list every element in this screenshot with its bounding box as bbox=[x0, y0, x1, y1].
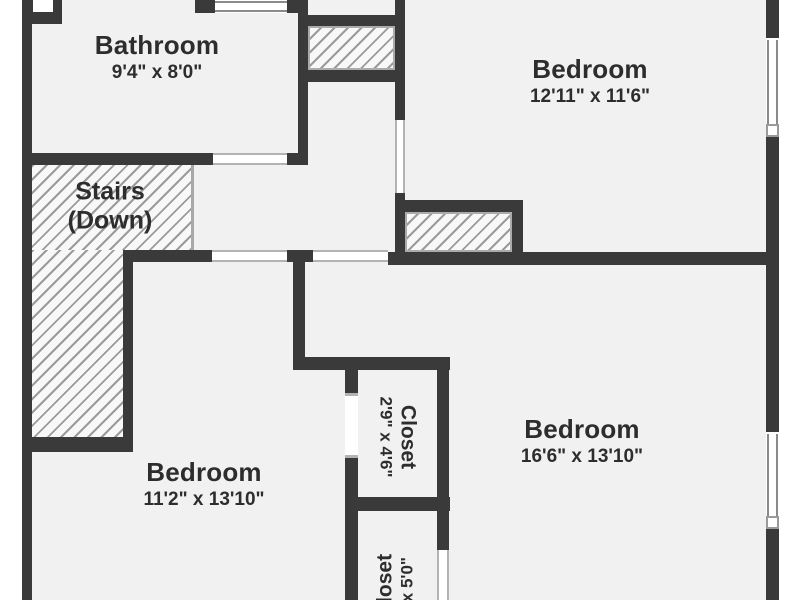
wall-segment bbox=[293, 357, 450, 370]
wall-segment bbox=[437, 513, 449, 550]
door-jamb-line bbox=[395, 120, 397, 193]
window-frame-line bbox=[776, 434, 778, 516]
wall-segment bbox=[395, 0, 405, 120]
wall-segment bbox=[308, 70, 405, 82]
door-jamb-line bbox=[403, 120, 405, 193]
door-jamb-line bbox=[345, 393, 358, 396]
wall-segment bbox=[287, 153, 308, 165]
floor-plan: Bathroom 9'4" x 8'0" Bedroom 12'11" x 11… bbox=[0, 0, 800, 600]
wall-segment bbox=[345, 368, 358, 395]
window-sill bbox=[766, 124, 779, 137]
room-name: Bedroom bbox=[143, 458, 264, 488]
door-opening bbox=[345, 395, 358, 456]
room-label-bedroom-bottom-right: Bedroom 16'6" x 13'10" bbox=[521, 415, 643, 469]
wall-segment bbox=[293, 262, 305, 368]
window-frame-line bbox=[215, 1, 287, 3]
door-jamb-line bbox=[213, 153, 287, 155]
wall-segment bbox=[22, 437, 133, 452]
door-jamb-line bbox=[212, 250, 287, 252]
wall-notch bbox=[33, 0, 53, 12]
window-frame-line bbox=[767, 434, 769, 516]
wall-segment bbox=[308, 15, 395, 26]
door-jamb-line bbox=[212, 260, 287, 262]
room-dimensions: 2'9" x 4'6" bbox=[374, 397, 396, 478]
door-jamb-line bbox=[213, 163, 287, 165]
room-subtitle: (Down) bbox=[68, 206, 153, 235]
room-label-closet-lower: Closet " x 5'0" bbox=[373, 554, 418, 600]
wall-segment bbox=[345, 497, 450, 511]
wall-segment bbox=[388, 252, 779, 265]
door-jamb-line bbox=[313, 260, 388, 262]
wall-segment bbox=[437, 357, 449, 513]
room-label-closet-upper: Closet 2'9" x 4'6" bbox=[374, 397, 419, 478]
room-dimensions: " x 5'0" bbox=[397, 554, 419, 600]
stairs-hatch-lower bbox=[32, 250, 123, 437]
room-name: Bedroom bbox=[530, 55, 650, 85]
wall-segment bbox=[123, 250, 212, 262]
wall-segment bbox=[22, 0, 32, 600]
room-dimensions: 9'4" x 8'0" bbox=[95, 61, 219, 85]
wall-segment bbox=[22, 153, 213, 165]
wall-segment bbox=[287, 250, 313, 262]
door-jamb-line bbox=[447, 550, 449, 600]
room-label-bathroom: Bathroom 9'4" x 8'0" bbox=[95, 31, 219, 85]
window-frame-line bbox=[215, 10, 287, 12]
door-jamb-line bbox=[345, 455, 358, 458]
wall-segment bbox=[345, 456, 358, 600]
room-label-bedroom-bottom-left: Bedroom 11'2" x 13'10" bbox=[143, 458, 264, 512]
window-frame-line bbox=[767, 40, 769, 124]
room-name: Bedroom bbox=[521, 415, 643, 445]
room-dimensions: 16'6" x 13'10" bbox=[521, 445, 643, 469]
window-frame-line bbox=[776, 40, 778, 124]
room-name: Bathroom bbox=[95, 31, 219, 61]
room-label-bedroom-top-right: Bedroom 12'11" x 11'6" bbox=[530, 55, 650, 109]
stairs-hatch-edge-line bbox=[191, 165, 194, 250]
door-jamb-line bbox=[313, 250, 388, 252]
room-name: Closet bbox=[373, 554, 396, 600]
room-dimensions: 11'2" x 13'10" bbox=[143, 488, 264, 512]
wall-segment bbox=[195, 0, 215, 13]
wall-segment bbox=[123, 250, 133, 452]
hatched-chase-top bbox=[308, 26, 395, 70]
door-jamb-line bbox=[437, 550, 439, 600]
window-sill bbox=[766, 516, 779, 529]
hatched-chase-middle bbox=[405, 212, 512, 252]
room-name: Stairs bbox=[68, 177, 153, 206]
room-label-stairs: Stairs (Down) bbox=[68, 177, 153, 235]
room-name: Closet bbox=[397, 397, 420, 478]
wall-segment bbox=[395, 200, 523, 212]
wall-segment bbox=[512, 212, 523, 253]
wall-segment bbox=[298, 0, 308, 165]
room-dimensions: 12'11" x 11'6" bbox=[530, 85, 650, 109]
